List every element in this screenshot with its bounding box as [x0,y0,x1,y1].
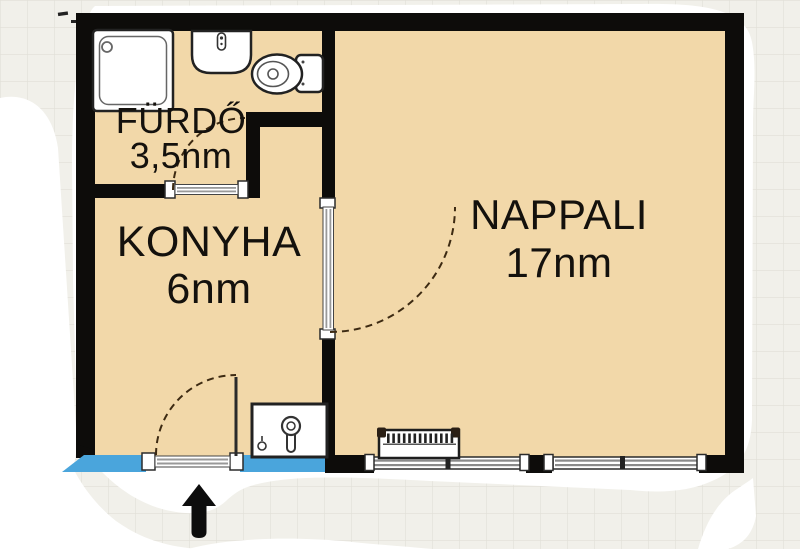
radiator-icon [377,428,460,459]
window-2-mullion [620,456,625,469]
entrance-door-line [157,459,228,461]
bathroom-wall-bottom [93,184,172,198]
shower-icon [93,30,173,111]
window-2-jamb-left [544,455,553,471]
window-2-frame [553,457,699,469]
bathroom-name: FÜRDŐ [98,103,264,138]
living-door-line [326,209,328,328]
bathroom-door-line [177,191,236,193]
pen-tick-mark-small [71,20,76,23]
entrance-door-leaf [235,377,238,456]
bathroom-door-jamb-right [238,181,248,198]
living-room-label: NAPPALI 17nm [459,191,659,287]
window-2-glass-line [555,464,697,466]
kitchen-area: 6nm [109,266,309,313]
entrance-door-threshold [155,456,230,467]
washbasin-icon [192,31,251,73]
living-room-name: NAPPALI [459,191,659,239]
window-2 [544,455,706,471]
living-door-line [330,209,332,328]
bathroom-label: FÜRDŐ 3,5nm [98,103,264,173]
outer-wall-top [76,13,744,31]
toilet-icon [252,55,323,94]
window-2-glass-line [555,460,697,462]
window-1-jamb-left [365,455,374,471]
kitchen-sink-icon [252,404,327,457]
bathroom-door-leaf [175,185,238,195]
floor-plan-page: FÜRDŐ 3,5nm KONYHA 6nm NAPPALI 17nm [0,0,800,549]
interior-wall-kitchen-living-upper [322,30,335,207]
entrance-door-jamb-left [142,453,155,470]
living-door-leaf [323,207,334,330]
window-1-jamb-right [520,455,529,471]
outer-wall-right [725,13,744,473]
bathroom-door-line [177,187,236,189]
kitchen-name: KONYHA [109,219,309,266]
living-room-area: 17nm [459,239,659,287]
window-2-jamb-right [697,455,706,471]
bathroom-area: 3,5nm [98,138,264,173]
kitchen-label: KONYHA 6nm [109,219,309,313]
entrance-door-line [157,463,228,465]
